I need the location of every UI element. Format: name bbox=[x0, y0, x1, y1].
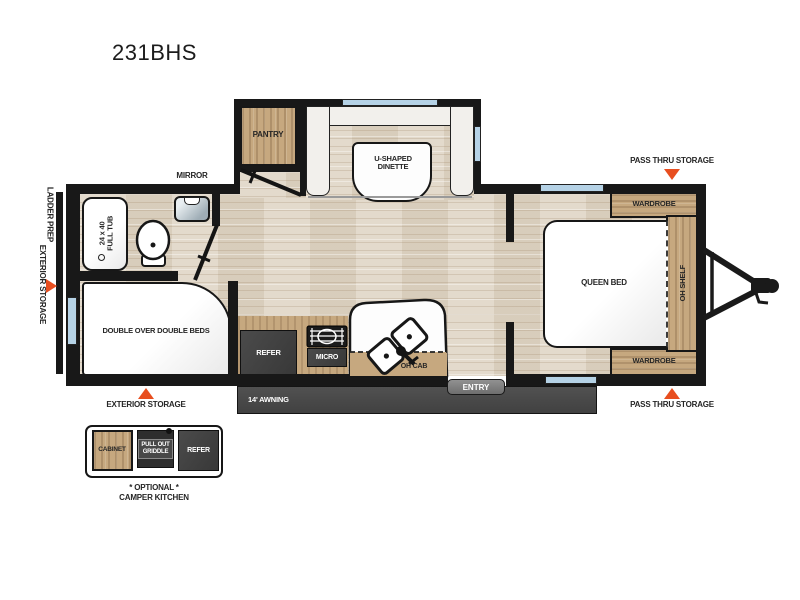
wall-bunk-kitchen bbox=[228, 281, 238, 376]
pass-thru-bottom-label: PASS THRU STORAGE bbox=[630, 401, 714, 410]
refer-label: REFER bbox=[256, 349, 280, 357]
dinette-table bbox=[352, 142, 432, 202]
wall-bottom-right bbox=[506, 374, 706, 386]
pass-thru-top-label: PASS THRU STORAGE bbox=[630, 157, 714, 166]
inset-griddle: PULL OUTGRIDDLE bbox=[137, 430, 174, 468]
dinette-bench-right bbox=[450, 106, 474, 196]
mirror-label: MIRROR bbox=[176, 172, 207, 181]
pass-thru-top-arrow-icon bbox=[664, 169, 680, 180]
inset-caption-line2: CAMPER KITCHEN bbox=[119, 494, 189, 503]
wall-pantry-left bbox=[234, 99, 240, 194]
awning-band bbox=[237, 386, 597, 414]
wall-rear bbox=[66, 184, 80, 386]
exterior-storage-side-label: EXTERIOR STORAGE bbox=[37, 236, 46, 333]
bathtub-label: 24 x 40FULL TUB bbox=[99, 204, 116, 262]
floorplan-page: 231BHS 24 x 40FULL TUB PANTRY bbox=[0, 0, 800, 600]
inset-cabinet-label: CABINET bbox=[98, 446, 126, 453]
dinette-bench-back bbox=[306, 106, 474, 126]
pass-thru-bottom-arrow-icon bbox=[664, 388, 680, 399]
inset-caption-line1: * OPTIONAL * bbox=[129, 484, 178, 493]
wall-bath-bottom bbox=[80, 271, 178, 281]
dinette-label: U-SHAPEDDINETTE bbox=[374, 155, 412, 172]
exterior-storage-side-arrow-icon bbox=[46, 279, 57, 293]
oh-shelf-label: OH SHELF bbox=[679, 259, 687, 307]
hitch-icon bbox=[704, 250, 779, 318]
micro-label: MICRO bbox=[316, 354, 338, 362]
window-dinette-top bbox=[342, 99, 438, 106]
awning-label: 14' AWNING bbox=[248, 396, 289, 404]
inset-griddle-knob-icon bbox=[166, 428, 172, 434]
wardrobe-top-label: WARDROBE bbox=[633, 200, 676, 208]
bathtub: 24 x 40FULL TUB bbox=[82, 197, 128, 271]
queen-bed-label: QUEEN BED bbox=[581, 279, 627, 288]
inset-refer: REFER bbox=[178, 430, 219, 471]
wall-bedroom-stub-top bbox=[506, 184, 514, 242]
exterior-storage-bottom-arrow-icon bbox=[138, 388, 154, 399]
dinette-bench-left bbox=[306, 106, 330, 196]
wall-bath-stub bbox=[212, 184, 220, 226]
window-bedroom-top bbox=[540, 184, 604, 192]
wall-bedroom-stub-bottom bbox=[506, 322, 514, 376]
pantry-nook-floor bbox=[240, 172, 306, 198]
oh-cab-label: OH CAB bbox=[401, 363, 427, 371]
wall-pantry-bottom bbox=[234, 166, 306, 172]
wall-slideout-left bbox=[300, 99, 306, 196]
refrigerator: REFER bbox=[240, 330, 297, 376]
sink-basin-icon bbox=[184, 197, 200, 205]
inset-griddle-label: PULL OUTGRIDDLE bbox=[138, 439, 172, 458]
wardrobe-bottom-label: WARDROBE bbox=[633, 357, 676, 365]
wall-bottom-left bbox=[66, 374, 448, 386]
ladder-prep-bar bbox=[56, 192, 63, 374]
entry-label: ENTRY bbox=[463, 383, 490, 392]
pantry-label: PANTRY bbox=[253, 131, 284, 140]
model-title: 231BHS bbox=[112, 40, 197, 66]
window-bedroom-bottom bbox=[545, 376, 597, 384]
bath-sink-mirror bbox=[174, 196, 210, 222]
window-rear bbox=[67, 297, 77, 345]
bunk-label: DOUBLE OVER DOUBLE BEDS bbox=[102, 327, 209, 335]
window-dinette-side bbox=[474, 126, 481, 162]
exterior-storage-bottom-label: EXTERIOR STORAGE bbox=[106, 401, 185, 410]
wall-front bbox=[698, 184, 706, 386]
microwave: MICRO bbox=[307, 348, 347, 367]
entry-door-tag: ENTRY bbox=[447, 379, 505, 395]
inset-refer-label: REFER bbox=[187, 447, 210, 455]
